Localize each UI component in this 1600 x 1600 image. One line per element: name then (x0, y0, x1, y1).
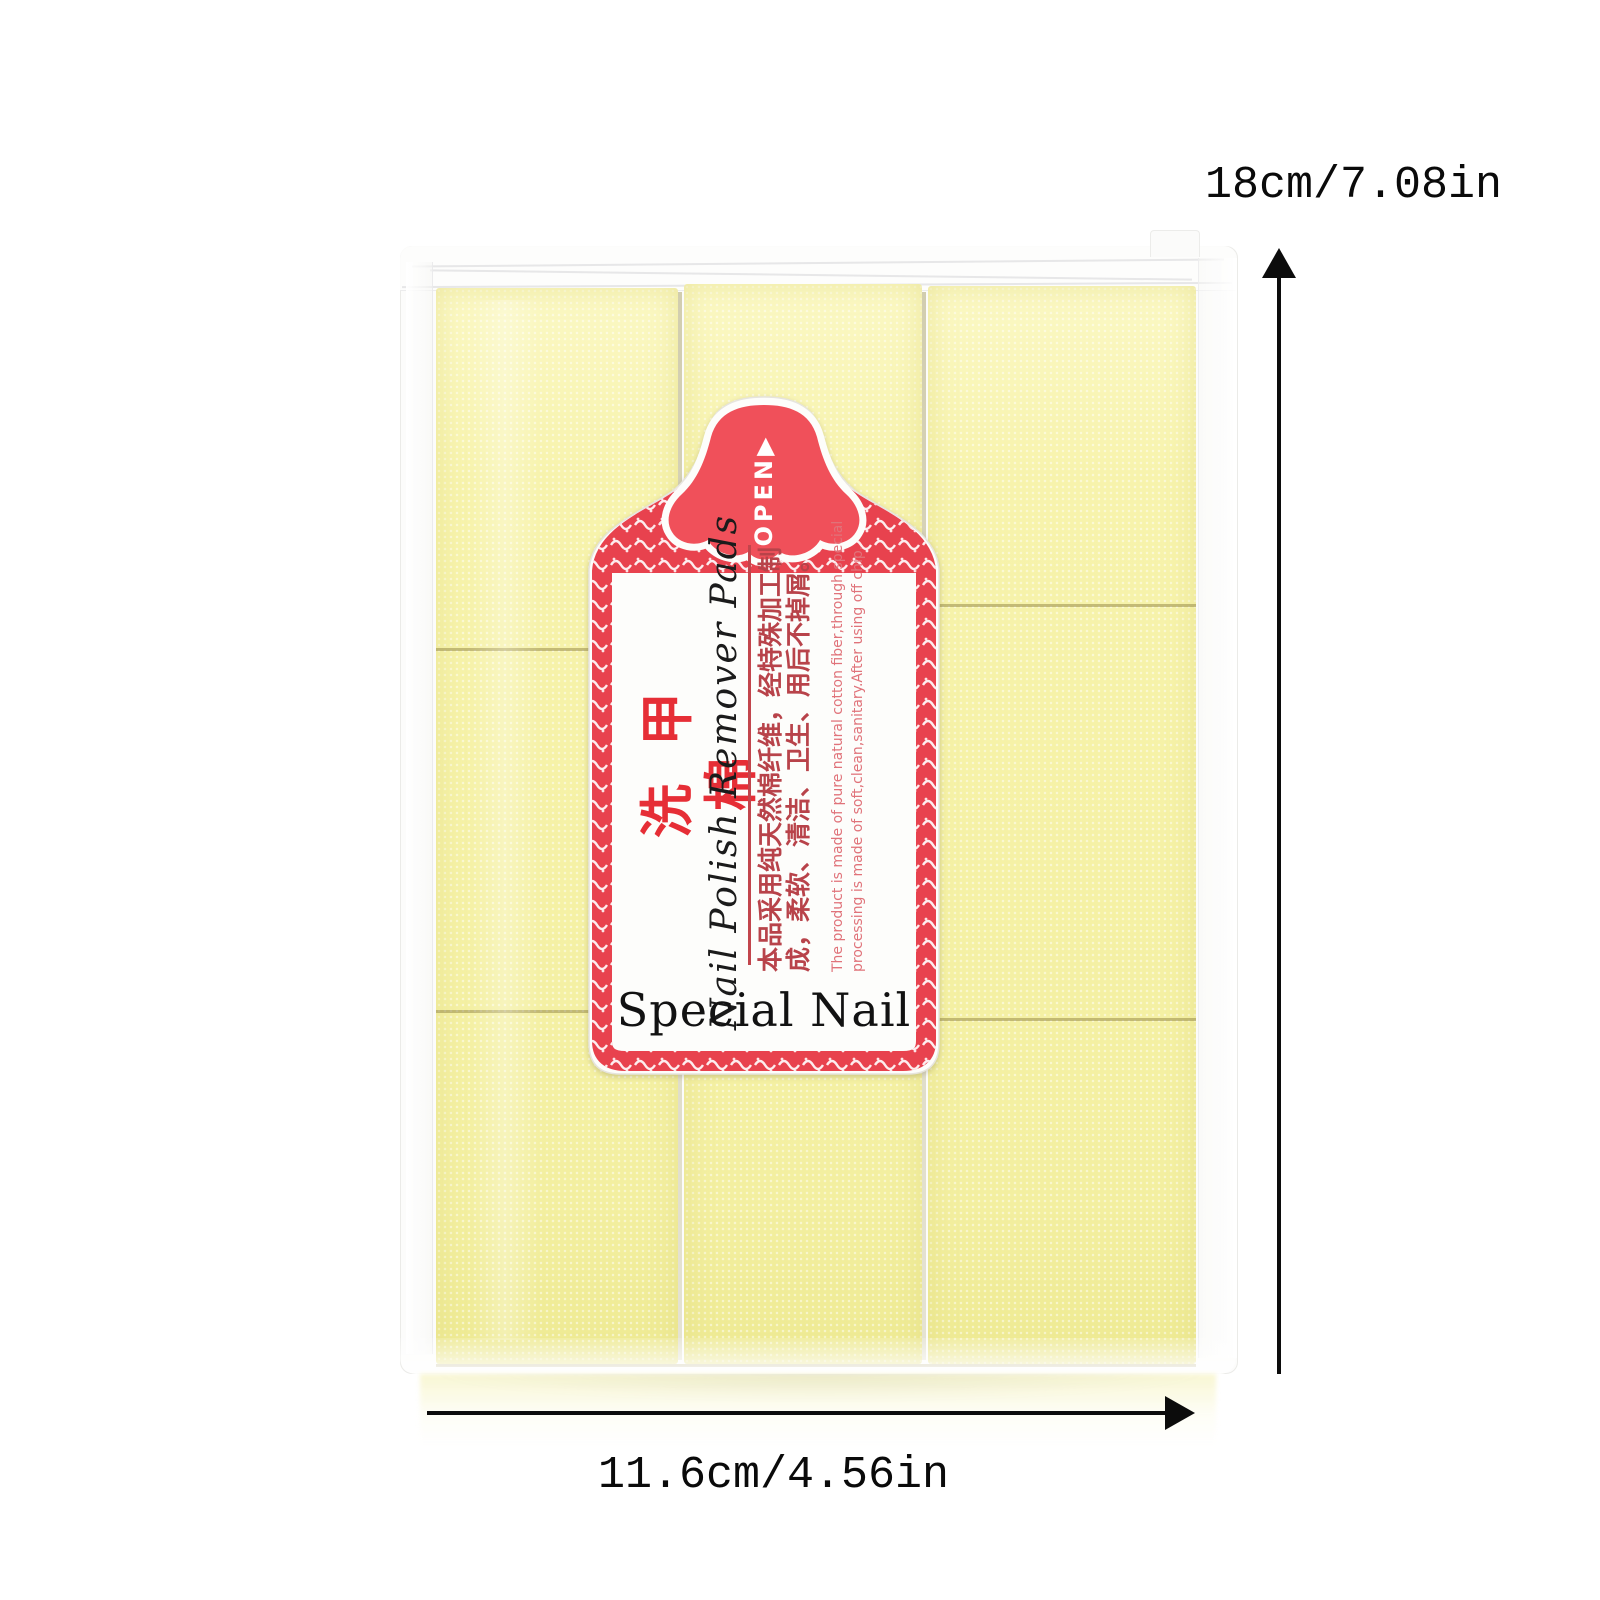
bag-corner-tab (1150, 230, 1200, 257)
bag-sheen (470, 300, 540, 1340)
width-dimension-label: 11.6cm/4.56in (598, 1450, 948, 1501)
desc-en-line1: The product is made of pure natural cott… (828, 522, 848, 972)
product-label: OPEN▶ 洗甲棉 Nail Polish Remover Pads 本品采用纯… (585, 395, 943, 1078)
width-dimension-line (427, 1411, 1169, 1415)
pad-row-seam (928, 604, 1196, 607)
label-description-chinese: 本品采用纯天然棉纤维，经特殊加工制 成，柔软、清洁、卫生、用后不掉屑。 (757, 532, 813, 972)
open-arrow-icon: ▶ (750, 434, 778, 456)
label-description-english: The product is made of pure natural cott… (828, 522, 868, 972)
right-arrow-icon (1165, 1396, 1195, 1430)
bag-right-edge (1198, 258, 1237, 1358)
bag-reflection (420, 1374, 1216, 1446)
pad-row-seam (928, 1018, 1196, 1021)
height-dimension-line (1277, 264, 1281, 1374)
height-dimension-label: 18cm/7.08in (1205, 160, 1502, 211)
label-title-english: Nail Polish Remover Pads (702, 550, 748, 1030)
desc-cn-line1: 本品采用纯天然棉纤维，经特殊加工制 (757, 532, 785, 972)
bag-bottom-seal (400, 1338, 1236, 1374)
label-divider-line (748, 545, 751, 965)
bag-left-edge (406, 262, 433, 1354)
desc-cn-line2: 成，柔软、清洁、卫生、用后不掉屑。 (785, 532, 813, 972)
brand-name: Special Nail (595, 983, 933, 1037)
product-photo: OPEN▶ 洗甲棉 Nail Polish Remover Pads 本品采用纯… (0, 0, 1600, 1600)
desc-en-line2: processing is made of soft,clean,sanitar… (848, 522, 868, 972)
up-arrow-icon (1262, 248, 1296, 278)
label-title-chinese: 洗甲棉 (635, 625, 699, 905)
pad-column-right (928, 286, 1196, 1364)
